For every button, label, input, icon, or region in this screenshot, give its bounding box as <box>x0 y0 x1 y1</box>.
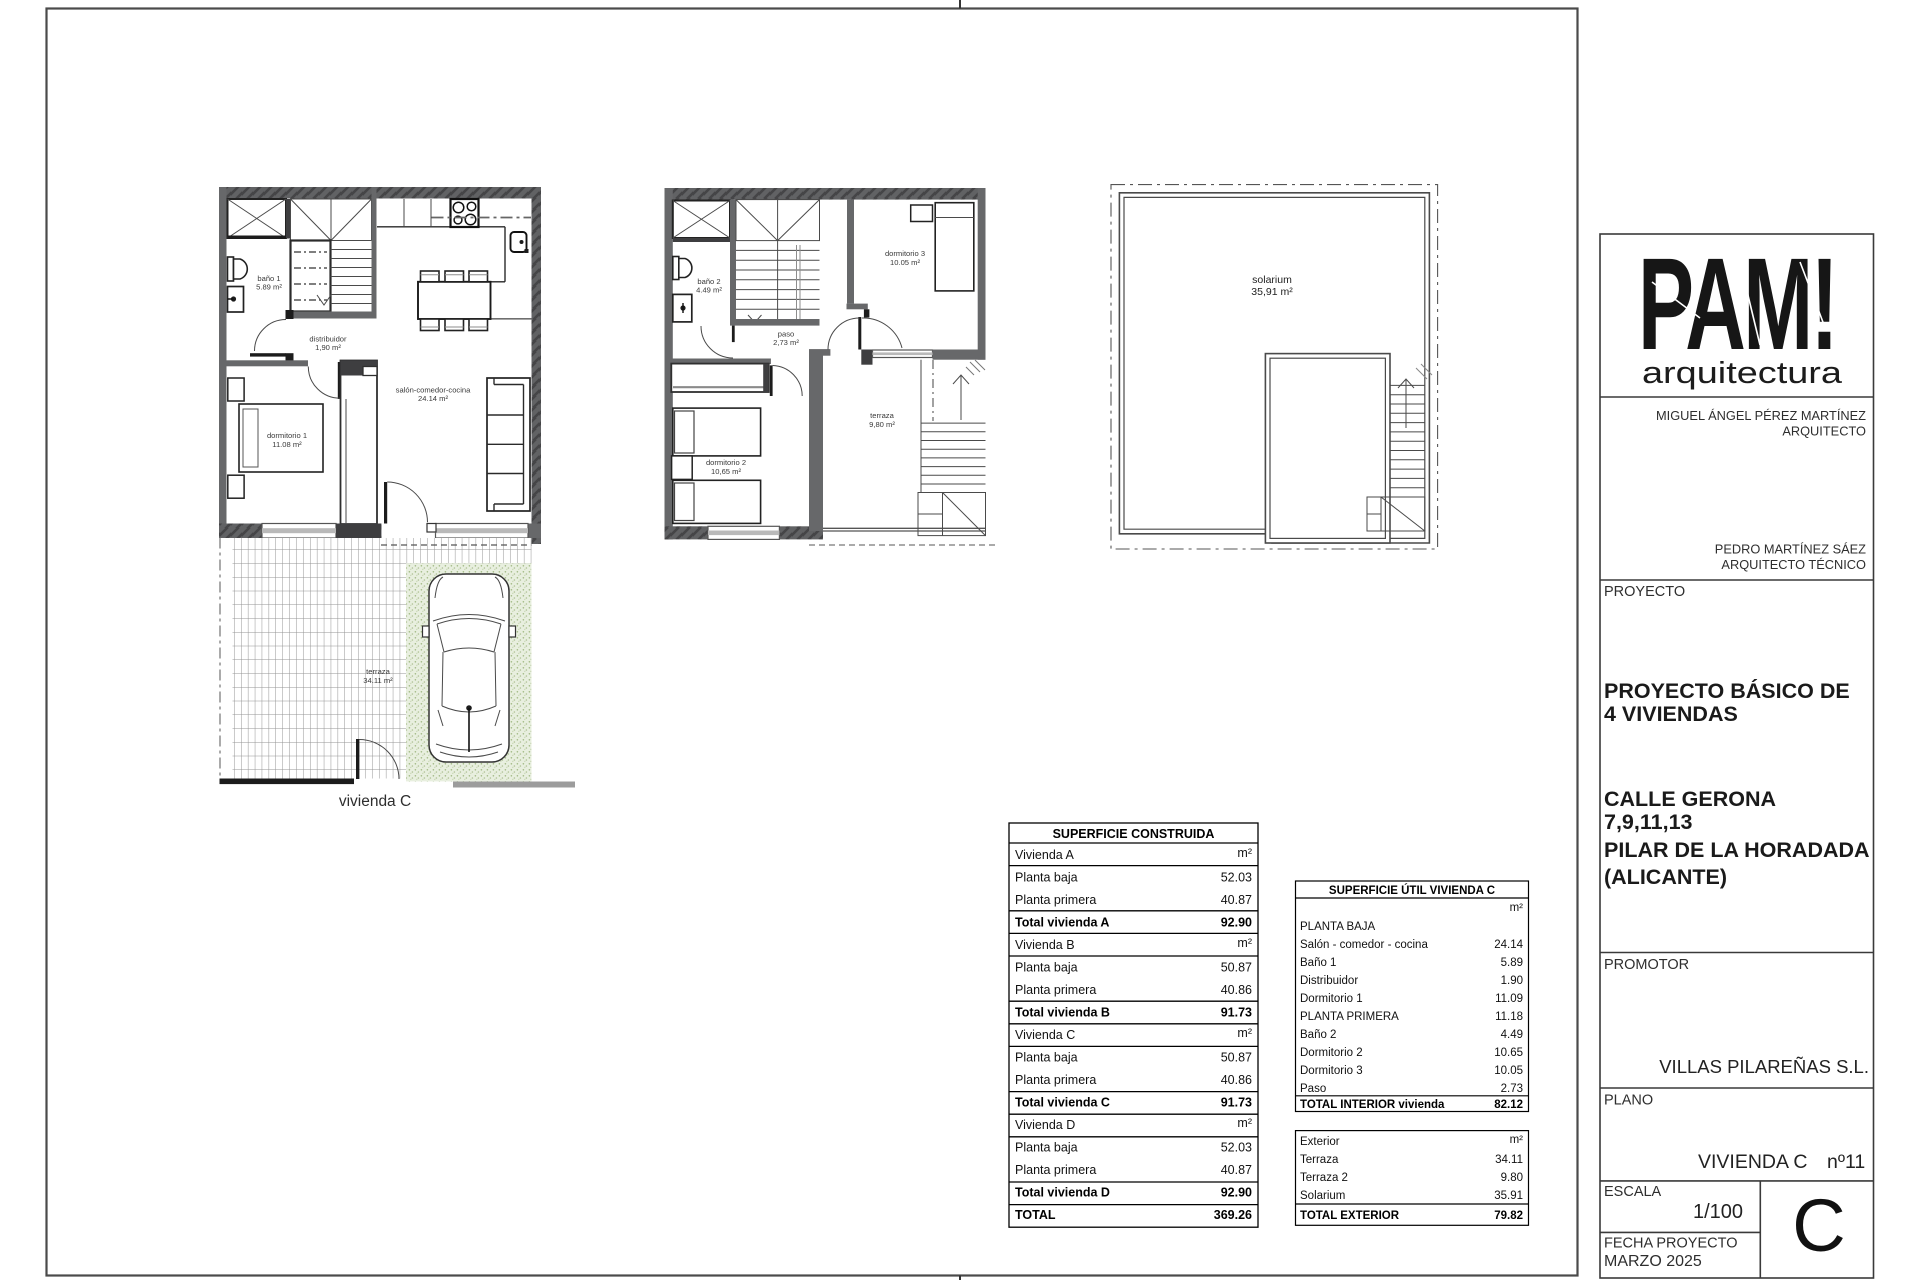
svg-text:Solarium: Solarium <box>1300 1190 1345 1202</box>
svg-text:Dormitorio 3: Dormitorio 3 <box>1300 1065 1363 1077</box>
svg-text:92.90: 92.90 <box>1221 916 1252 930</box>
svg-text:C: C <box>1792 1184 1845 1267</box>
svg-text:dormitorio 2: dormitorio 2 <box>706 458 746 467</box>
svg-text:40.86: 40.86 <box>1221 1073 1252 1087</box>
svg-text:35,91 m²: 35,91 m² <box>1251 286 1293 298</box>
svg-text:4.49 m²: 4.49 m² <box>696 286 722 295</box>
svg-text:PILAR DE LA HORADADA: PILAR DE LA HORADADA <box>1604 838 1870 862</box>
svg-text:PLANTA BAJA: PLANTA BAJA <box>1300 921 1376 933</box>
svg-text:2,73 m²: 2,73 m² <box>773 338 799 347</box>
svg-text:ARQUITECTO: ARQUITECTO <box>1782 424 1866 439</box>
svg-text:m²: m² <box>1237 1026 1252 1040</box>
svg-text:24.14: 24.14 <box>1494 939 1523 951</box>
svg-text:Salón - comedor - cocina: Salón - comedor - cocina <box>1300 939 1428 951</box>
svg-text:369.26: 369.26 <box>1214 1208 1252 1222</box>
svg-text:Planta baja: Planta baja <box>1015 1141 1078 1155</box>
svg-text:terraza: terraza <box>870 411 894 420</box>
svg-text:52.03: 52.03 <box>1221 871 1252 885</box>
svg-text:Vivienda C: Vivienda C <box>1015 1028 1075 1042</box>
svg-text:Total vivienda B: Total vivienda B <box>1015 1006 1110 1020</box>
svg-text:35.91: 35.91 <box>1494 1190 1523 1202</box>
svg-text:Terraza 2: Terraza 2 <box>1300 1172 1348 1184</box>
svg-text:1/100: 1/100 <box>1693 1201 1743 1223</box>
svg-text:10.65: 10.65 <box>1494 1047 1523 1059</box>
svg-text:Planta primera: Planta primera <box>1015 1073 1096 1087</box>
svg-text:Total vivienda C: Total vivienda C <box>1015 1096 1110 1110</box>
svg-text:FECHA PROYECTO: FECHA PROYECTO <box>1604 1236 1737 1252</box>
svg-text:PLANO: PLANO <box>1604 1093 1653 1109</box>
svg-text:82.12: 82.12 <box>1494 1099 1523 1111</box>
svg-text:4 VIVIENDAS: 4 VIVIENDAS <box>1604 702 1738 726</box>
svg-text:52.03: 52.03 <box>1221 1141 1252 1155</box>
svg-text:Terraza: Terraza <box>1300 1154 1339 1166</box>
svg-text:VILLAS PILAREÑAS S.L.: VILLAS PILAREÑAS S.L. <box>1659 1056 1869 1077</box>
svg-text:PLANTA PRIMERA: PLANTA PRIMERA <box>1300 1011 1399 1023</box>
svg-text:91.73: 91.73 <box>1221 1096 1252 1110</box>
svg-text:5.89: 5.89 <box>1501 957 1523 969</box>
svg-text:TOTAL: TOTAL <box>1015 1208 1056 1222</box>
svg-text:Dormitorio 2: Dormitorio 2 <box>1300 1047 1363 1059</box>
svg-text:10,65 m²: 10,65 m² <box>711 467 741 476</box>
svg-text:dormitorio 1: dormitorio 1 <box>267 431 307 440</box>
svg-text:Planta primera: Planta primera <box>1015 983 1096 997</box>
svg-text:Vivienda B: Vivienda B <box>1015 938 1075 952</box>
svg-text:10.05 m²: 10.05 m² <box>890 258 920 267</box>
svg-text:Vivienda A: Vivienda A <box>1015 848 1075 862</box>
svg-text:TOTAL INTERIOR vivienda: TOTAL INTERIOR vivienda <box>1300 1099 1445 1111</box>
svg-text:Total vivienda A: Total vivienda A <box>1015 916 1109 930</box>
svg-text:(ALICANTE): (ALICANTE) <box>1604 865 1727 889</box>
svg-text:11.09: 11.09 <box>1495 993 1523 1005</box>
svg-text:50.87: 50.87 <box>1221 1051 1252 1065</box>
svg-text:CALLE GERONA: CALLE GERONA <box>1604 787 1776 811</box>
svg-text:34.11: 34.11 <box>1495 1154 1523 1166</box>
svg-text:79.82: 79.82 <box>1494 1210 1523 1222</box>
svg-text:Planta primera: Planta primera <box>1015 893 1096 907</box>
svg-text:2.73: 2.73 <box>1501 1083 1523 1095</box>
svg-text:ESCALA: ESCALA <box>1604 1184 1662 1200</box>
svg-text:MIGUEL ÁNGEL PÉREZ MARTÍNEZ: MIGUEL ÁNGEL PÉREZ MARTÍNEZ <box>1656 408 1866 423</box>
svg-text:m²: m² <box>1237 936 1252 950</box>
svg-text:TOTAL EXTERIOR: TOTAL EXTERIOR <box>1300 1210 1400 1222</box>
svg-text:vivienda C: vivienda C <box>339 793 411 810</box>
svg-text:MARZO 2025: MARZO 2025 <box>1604 1253 1702 1270</box>
svg-text:Baño 2: Baño 2 <box>1300 1029 1336 1041</box>
svg-text:1,90 m²: 1,90 m² <box>315 343 341 352</box>
svg-text:9.80: 9.80 <box>1501 1172 1523 1184</box>
svg-text:VIVIENDA C: VIVIENDA C <box>1698 1151 1807 1173</box>
svg-text:PROYECTO: PROYECTO <box>1604 584 1685 600</box>
svg-text:m²: m² <box>1237 846 1252 860</box>
svg-text:Distribuidor: Distribuidor <box>1300 975 1358 987</box>
svg-text:PROYECTO BÁSICO DE: PROYECTO BÁSICO DE <box>1604 678 1850 703</box>
svg-text:PROMOTOR: PROMOTOR <box>1604 957 1689 973</box>
svg-text:Vivienda D: Vivienda D <box>1015 1118 1075 1132</box>
svg-text:4.49: 4.49 <box>1501 1029 1523 1041</box>
svg-text:5.89 m²: 5.89 m² <box>256 283 282 292</box>
svg-text:arquitectura: arquitectura <box>1642 355 1843 390</box>
svg-text:24.14 m²: 24.14 m² <box>418 394 448 403</box>
svg-text:Planta baja: Planta baja <box>1015 1051 1078 1065</box>
svg-text:11.08 m²: 11.08 m² <box>272 440 302 449</box>
svg-text:92.90: 92.90 <box>1221 1186 1252 1200</box>
svg-text:Baño 1: Baño 1 <box>1300 957 1336 969</box>
svg-text:Exterior: Exterior <box>1300 1136 1340 1148</box>
svg-text:Total vivienda D: Total vivienda D <box>1015 1186 1110 1200</box>
svg-text:nº11: nº11 <box>1827 1151 1865 1173</box>
svg-text:Planta primera: Planta primera <box>1015 1163 1096 1177</box>
svg-text:40.87: 40.87 <box>1221 893 1252 907</box>
svg-text:1.90: 1.90 <box>1501 975 1523 987</box>
svg-text:91.73: 91.73 <box>1221 1006 1252 1020</box>
svg-text:m²: m² <box>1510 902 1524 914</box>
svg-text:40.86: 40.86 <box>1221 983 1252 997</box>
svg-text:10.05: 10.05 <box>1494 1065 1523 1077</box>
svg-text:solarium: solarium <box>1252 274 1292 286</box>
svg-text:Paso: Paso <box>1300 1083 1326 1095</box>
svg-text:34.11 m²: 34.11 m² <box>363 676 393 685</box>
svg-text:Planta baja: Planta baja <box>1015 871 1078 885</box>
svg-text:dormitorio 3: dormitorio 3 <box>885 249 925 258</box>
svg-text:40.87: 40.87 <box>1221 1163 1252 1177</box>
svg-text:Planta baja: Planta baja <box>1015 961 1078 975</box>
svg-text:SUPERFICIE ÚTIL VIVIENDA C: SUPERFICIE ÚTIL VIVIENDA C <box>1329 884 1495 897</box>
svg-text:Dormitorio 1: Dormitorio 1 <box>1300 993 1363 1005</box>
svg-text:7,9,11,13: 7,9,11,13 <box>1604 810 1693 834</box>
svg-text:PEDRO MARTÍNEZ SÁEZ: PEDRO MARTÍNEZ SÁEZ <box>1715 542 1866 557</box>
svg-text:ARQUITECTO TÉCNICO: ARQUITECTO TÉCNICO <box>1721 557 1866 572</box>
svg-text:m²: m² <box>1510 1134 1524 1146</box>
svg-text:terraza: terraza <box>366 667 390 676</box>
svg-text:50.87: 50.87 <box>1221 961 1252 975</box>
svg-text:9,80 m²: 9,80 m² <box>869 420 895 429</box>
svg-text:m²: m² <box>1237 1116 1252 1130</box>
svg-text:11.18: 11.18 <box>1495 1011 1523 1023</box>
svg-text:SUPERFICIE CONSTRUIDA: SUPERFICIE CONSTRUIDA <box>1053 827 1215 841</box>
